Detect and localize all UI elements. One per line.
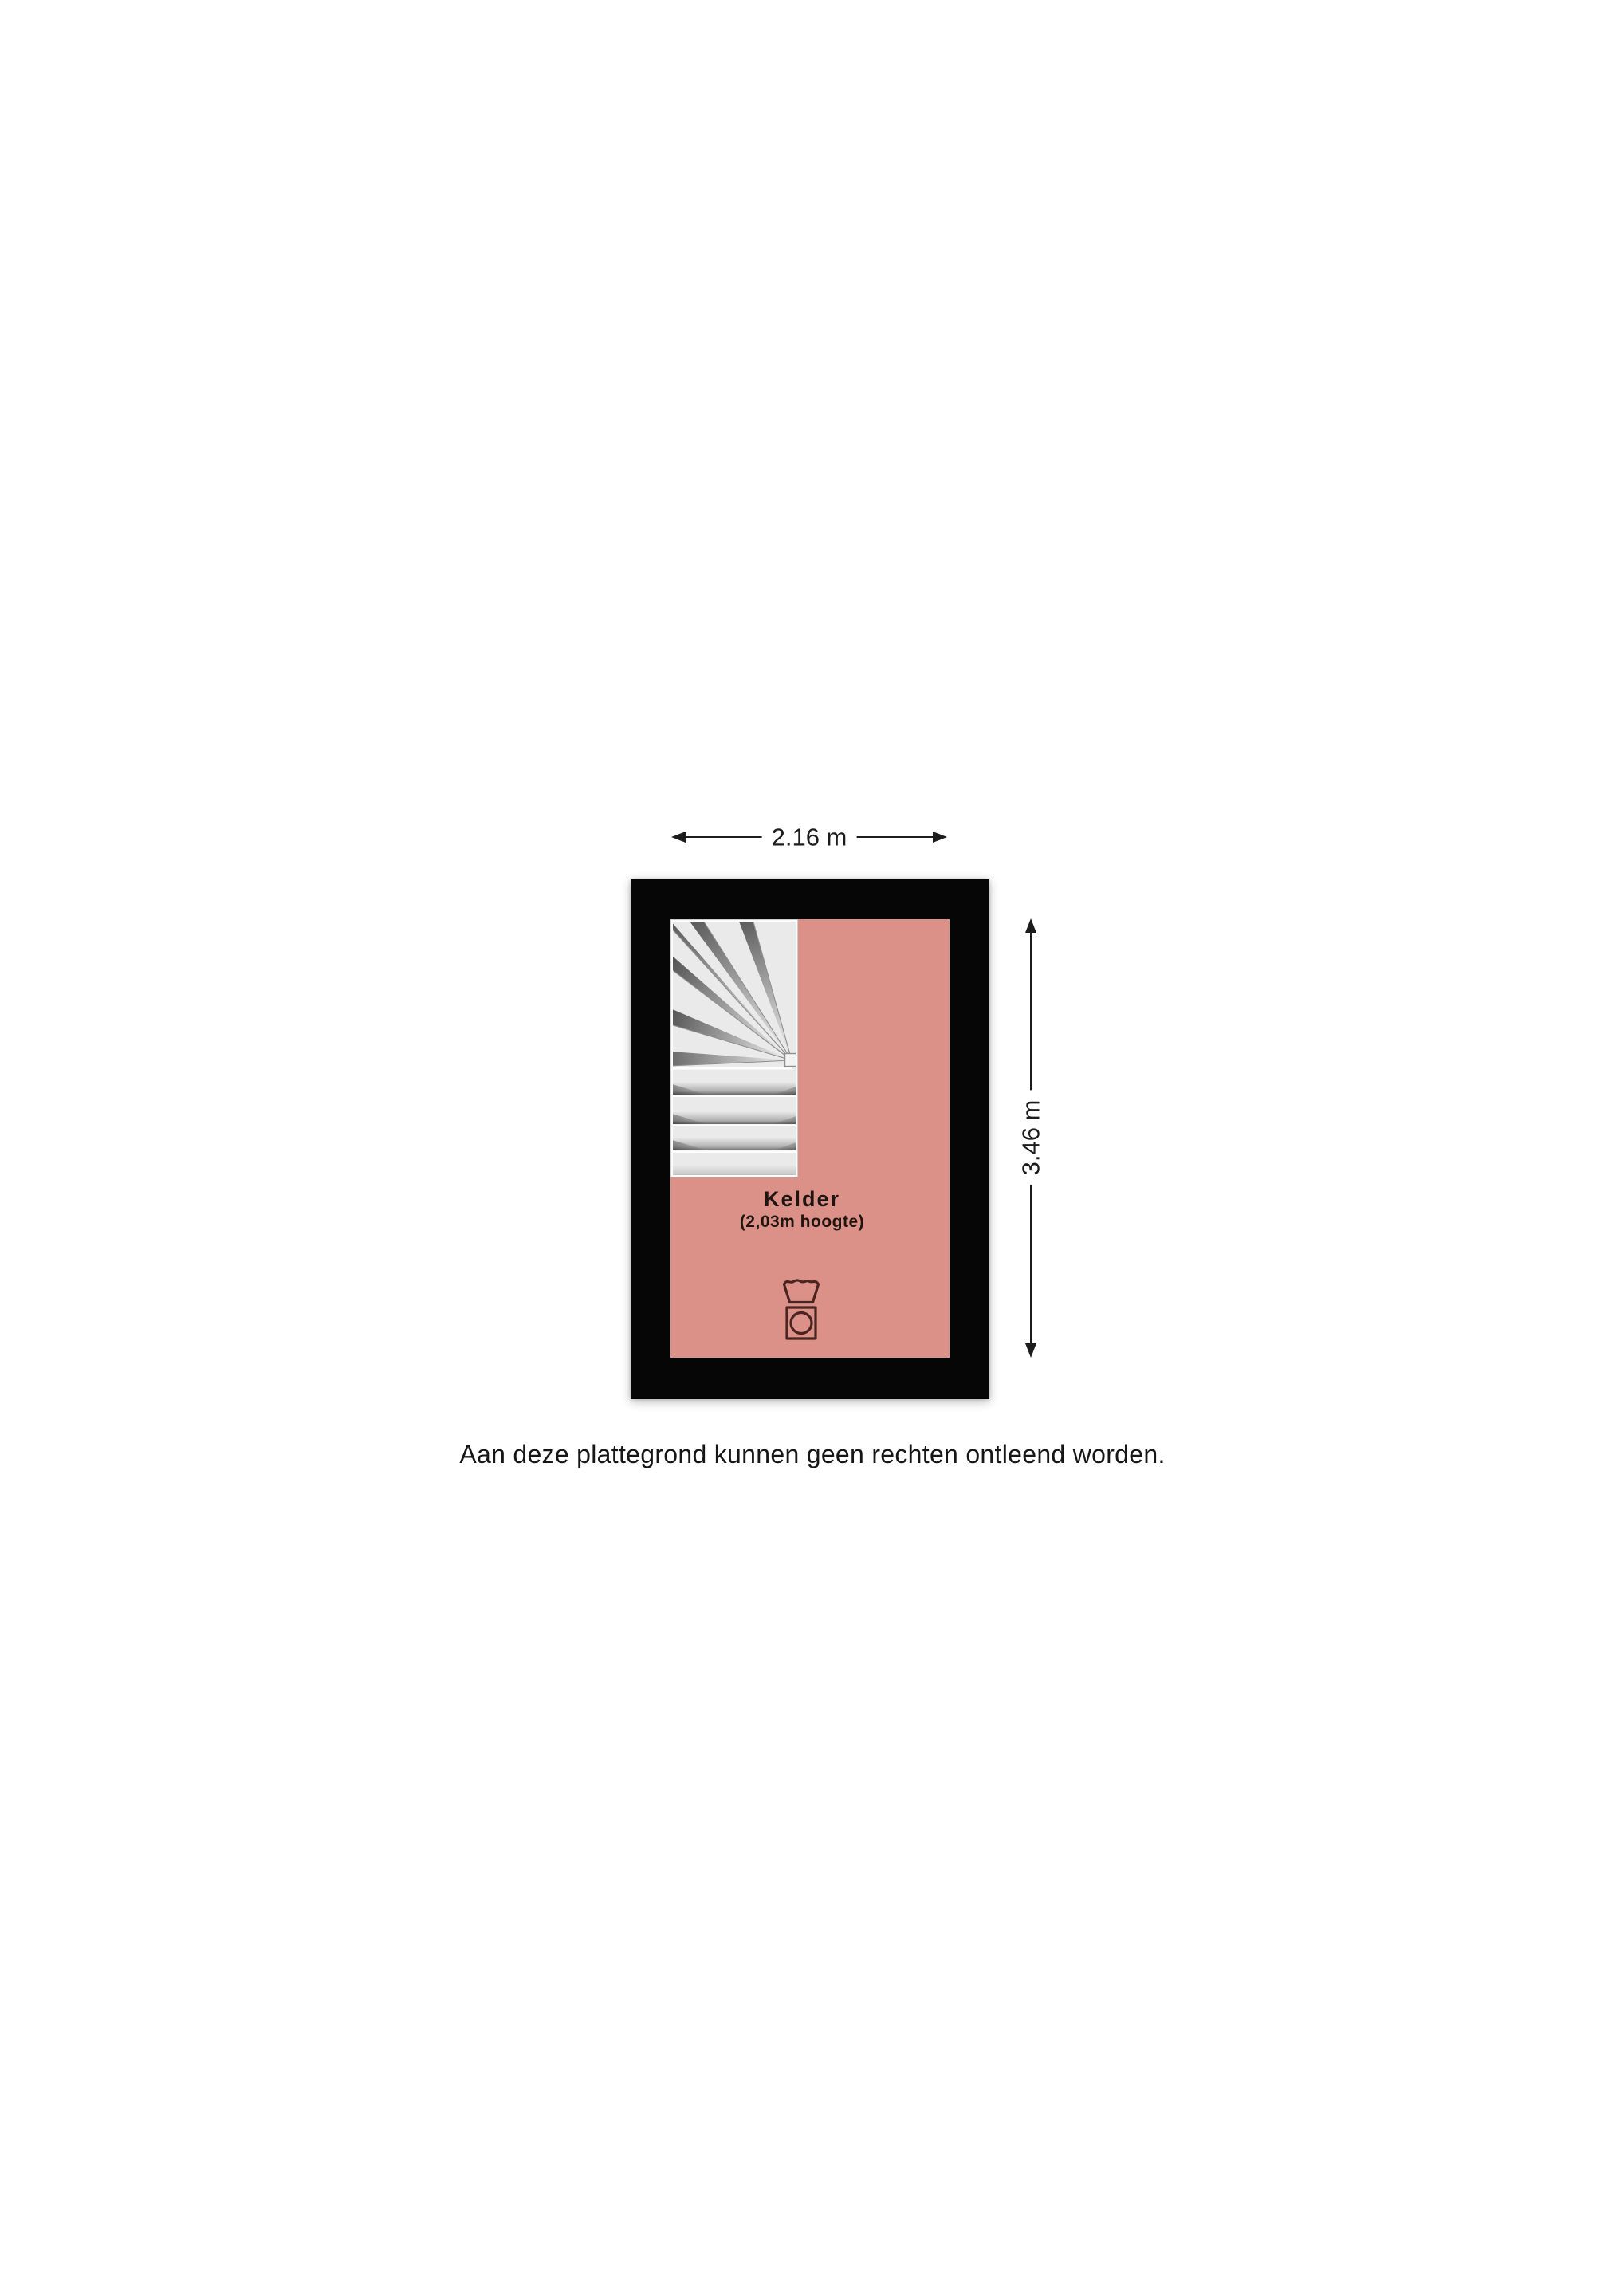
staircase (670, 919, 798, 1177)
height-dimension-label: 3.46 m (1017, 1091, 1045, 1185)
floorplan-page: 2.16 m 3.46 m (0, 0, 1624, 2296)
basement-plan: Kelder (2,03m hoogte) (631, 879, 989, 1399)
washing-machine-icon (781, 1276, 821, 1342)
width-dimension-label: 2.16 m (762, 824, 857, 851)
arrow-down-icon (1025, 1343, 1036, 1358)
room-name: Kelder (663, 1187, 942, 1212)
room-label: Kelder (2,03m hoogte) (663, 1187, 942, 1233)
arrow-right-icon (933, 832, 947, 843)
room-height-note: (2,03m hoogte) (663, 1212, 942, 1233)
kelder-floor: Kelder (2,03m hoogte) (670, 919, 950, 1358)
disclaimer-caption: Aan deze plattegrond kunnen geen rechten… (459, 1440, 1165, 1469)
